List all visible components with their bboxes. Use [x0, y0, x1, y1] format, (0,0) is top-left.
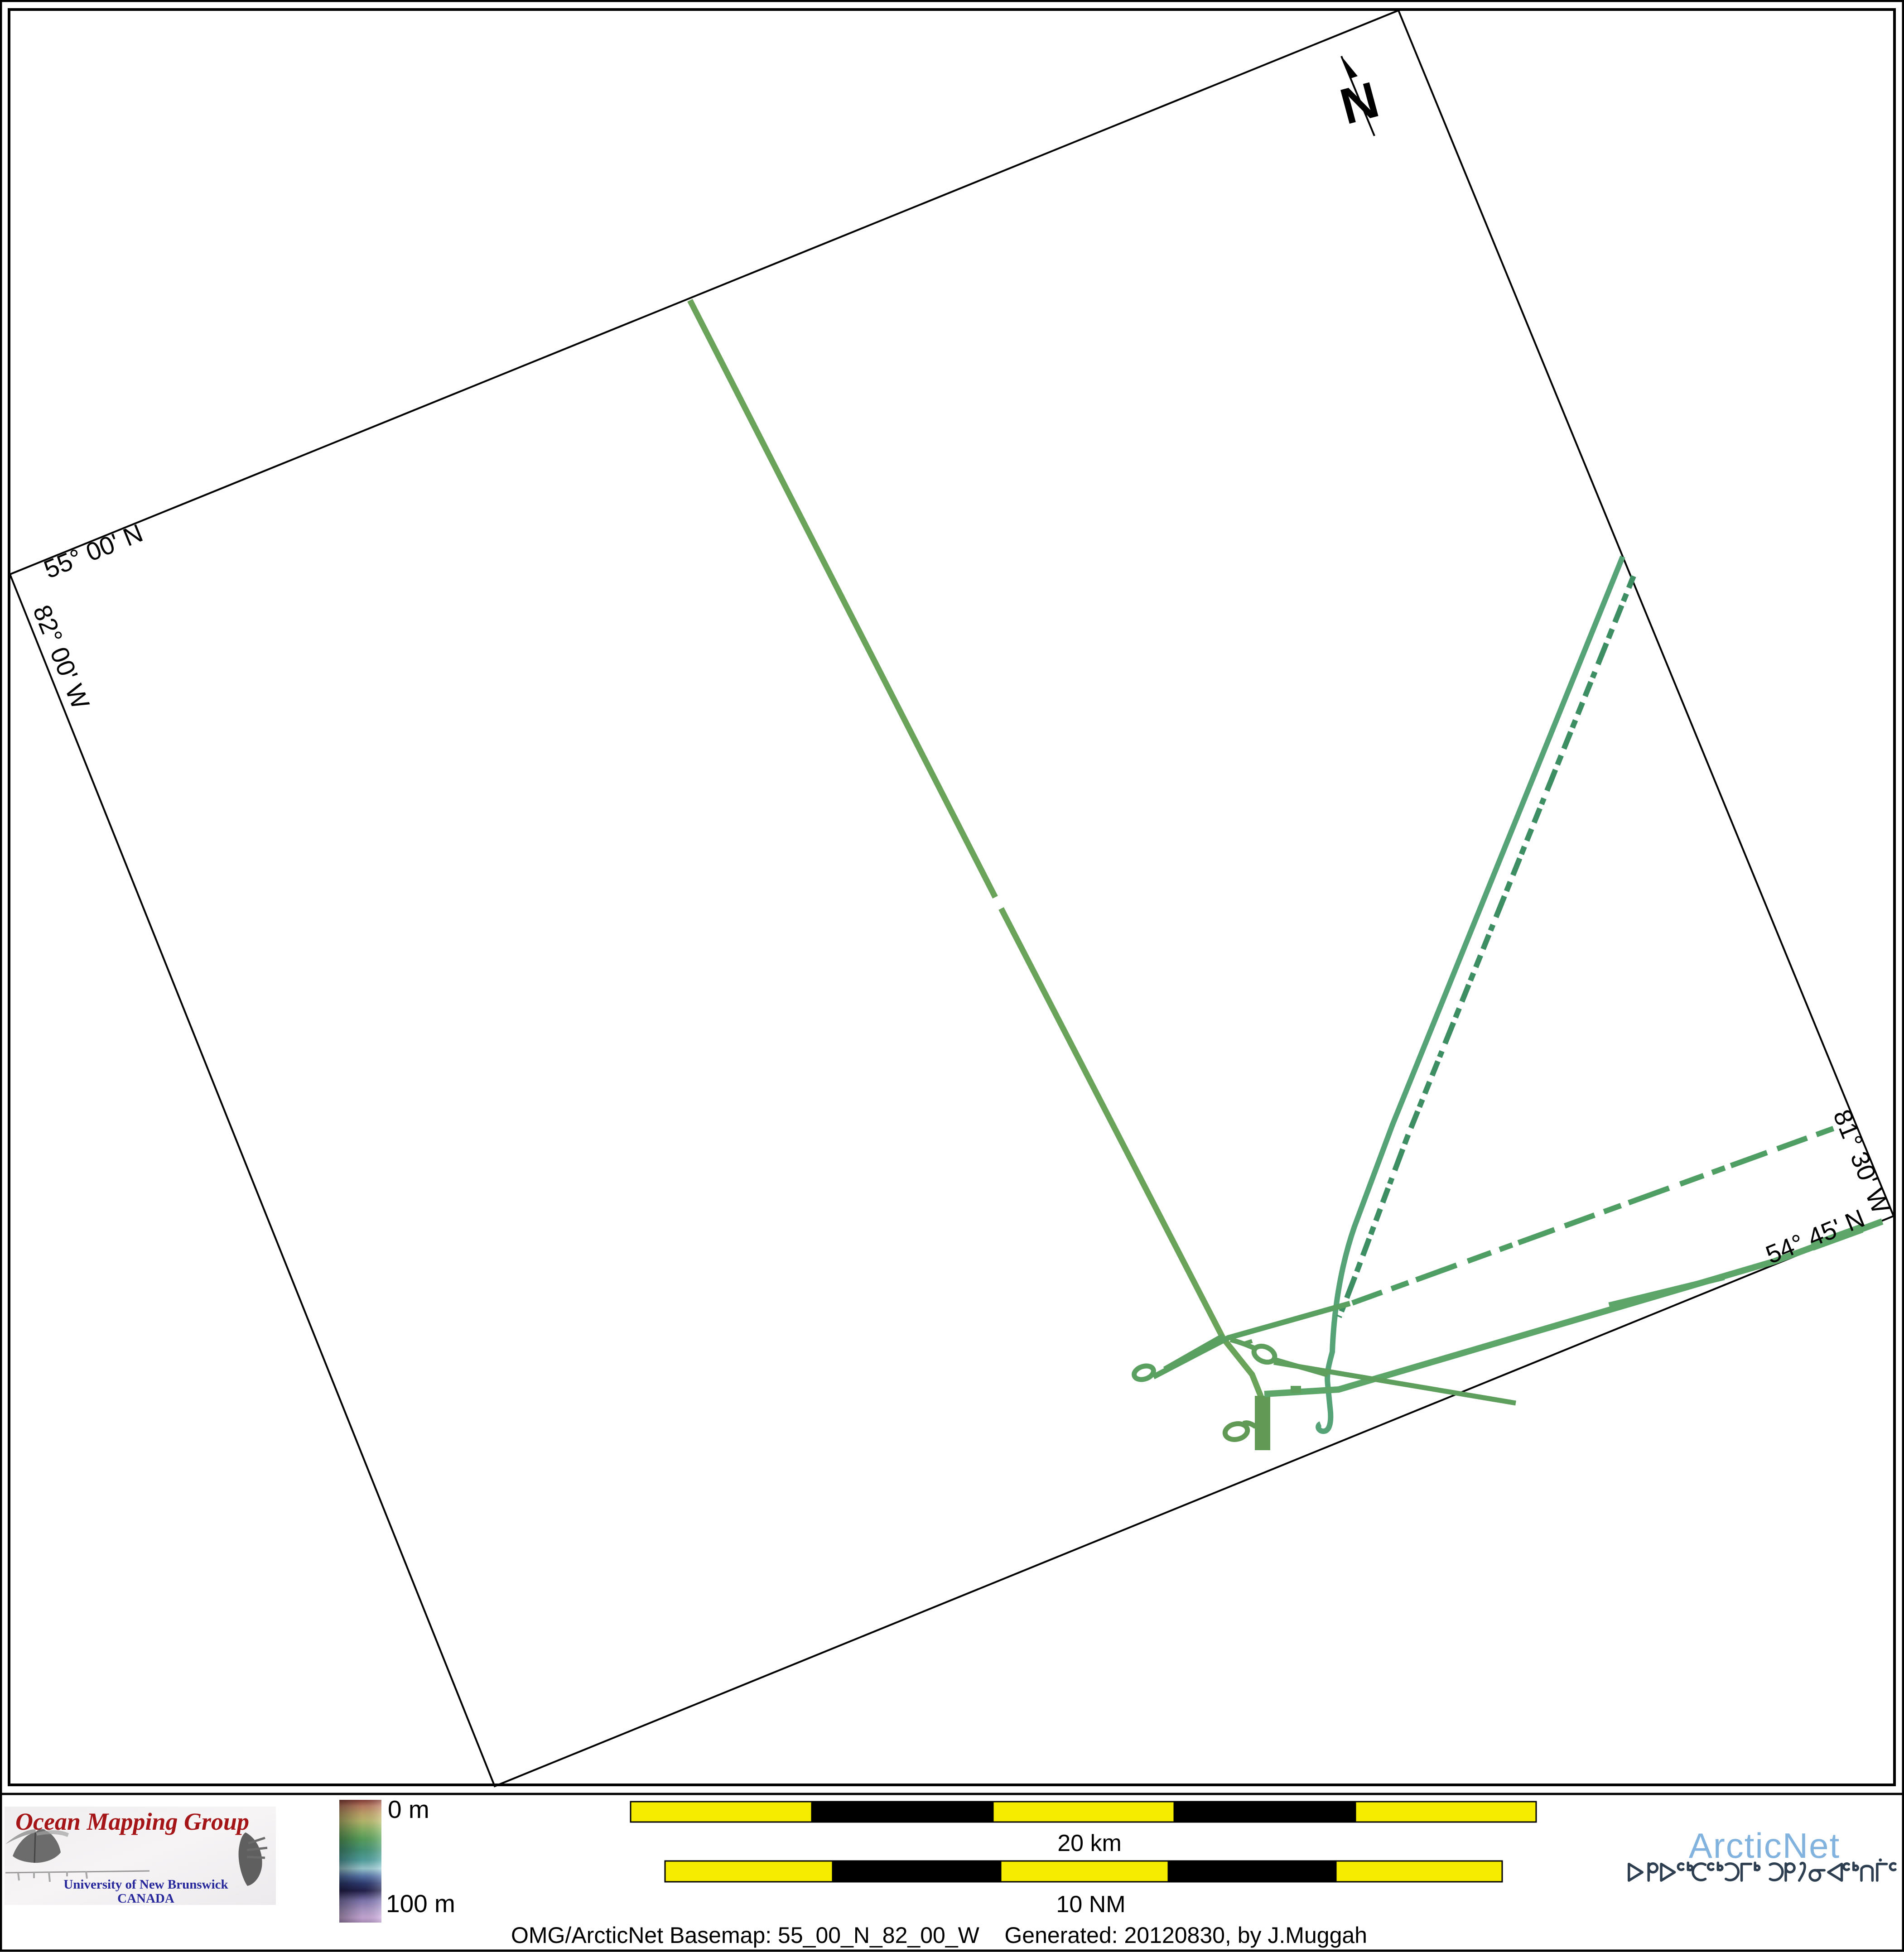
svg-text:20 km: 20 km — [1057, 1830, 1122, 1856]
svg-text:CANADA: CANADA — [117, 1891, 174, 1906]
svg-text:ArcticNet: ArcticNet — [1689, 1826, 1840, 1865]
svg-text:10 NM: 10 NM — [1056, 1891, 1125, 1918]
svg-text:University of New Brunswick: University of New Brunswick — [63, 1877, 228, 1892]
svg-text:OMG/ArcticNet Basemap: 55_00_N: OMG/ArcticNet Basemap: 55_00_N_82_00_W G… — [511, 1923, 1367, 1948]
svg-text:Ocean Mapping Group: Ocean Mapping Group — [15, 1808, 249, 1835]
svg-text:0 m: 0 m — [388, 1795, 429, 1823]
svg-text:100 m: 100 m — [386, 1889, 455, 1918]
